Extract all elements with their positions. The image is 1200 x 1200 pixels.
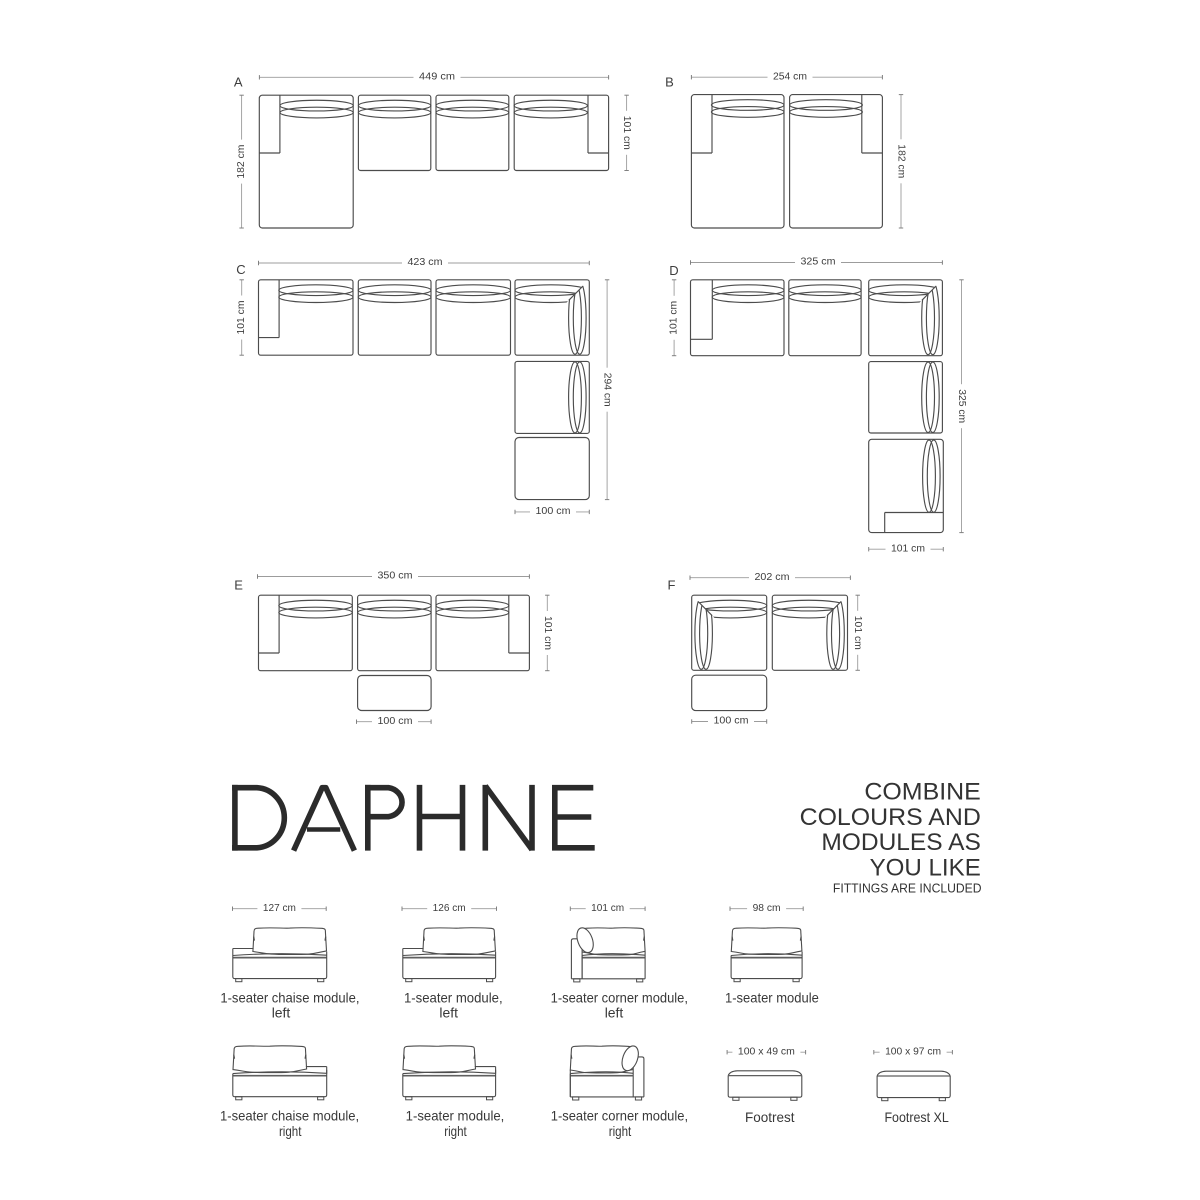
svg-text:COLOURS AND: COLOURS AND xyxy=(800,804,981,831)
svg-text:COMBINE: COMBINE xyxy=(864,779,980,806)
svg-text:right: right xyxy=(609,1123,632,1139)
svg-text:1-seater corner module,: 1-seater corner module, xyxy=(551,1108,688,1124)
svg-text:101 cm: 101 cm xyxy=(591,903,624,914)
svg-text:182 cm: 182 cm xyxy=(896,144,907,178)
svg-text:325 cm: 325 cm xyxy=(956,389,967,423)
svg-text:254 cm: 254 cm xyxy=(773,71,807,82)
svg-text:101 cm: 101 cm xyxy=(852,616,863,650)
svg-text:Footrest: Footrest xyxy=(745,1109,795,1125)
svg-text:100 cm: 100 cm xyxy=(536,506,571,517)
svg-text:100 x 97 cm: 100 x 97 cm xyxy=(885,1046,941,1057)
svg-text:294 cm: 294 cm xyxy=(602,373,613,407)
svg-text:E: E xyxy=(234,578,243,593)
svg-text:101 cm: 101 cm xyxy=(669,301,680,335)
svg-text:1-seater module,: 1-seater module, xyxy=(404,989,503,1005)
svg-text:449 cm: 449 cm xyxy=(419,71,455,82)
svg-text:MODULES AS: MODULES AS xyxy=(821,829,980,856)
svg-text:1-seater chaise module,: 1-seater chaise module, xyxy=(220,1108,359,1124)
svg-text:YOU LIKE: YOU LIKE xyxy=(870,854,981,881)
svg-text:1-seater module,: 1-seater module, xyxy=(406,1108,505,1124)
svg-text:1-seater chaise module,: 1-seater chaise module, xyxy=(220,989,359,1005)
svg-text:C: C xyxy=(236,262,245,277)
svg-text:101 cm: 101 cm xyxy=(236,301,247,335)
svg-text:101 cm: 101 cm xyxy=(891,543,925,554)
svg-text:1-seater module: 1-seater module xyxy=(725,989,819,1005)
svg-text:left: left xyxy=(605,1005,624,1021)
svg-text:350 cm: 350 cm xyxy=(378,571,413,582)
svg-text:A: A xyxy=(234,75,243,90)
svg-text:D: D xyxy=(669,263,678,278)
svg-text:Footrest XL: Footrest XL xyxy=(884,1109,948,1125)
svg-text:FITTINGS ARE INCLUDED: FITTINGS ARE INCLUDED xyxy=(833,882,982,896)
svg-text:left: left xyxy=(439,1005,458,1021)
svg-text:101 cm: 101 cm xyxy=(621,116,632,150)
svg-text:B: B xyxy=(665,74,674,89)
svg-text:100 cm: 100 cm xyxy=(714,716,749,727)
svg-text:100 x 49 cm: 100 x 49 cm xyxy=(738,1046,795,1057)
svg-text:182 cm: 182 cm xyxy=(236,145,247,179)
svg-text:F: F xyxy=(668,577,676,592)
svg-text:325 cm: 325 cm xyxy=(801,257,836,268)
svg-text:left: left xyxy=(272,1005,291,1021)
svg-text:1-seater corner module,: 1-seater corner module, xyxy=(551,989,688,1005)
svg-text:423 cm: 423 cm xyxy=(408,257,443,268)
svg-text:right: right xyxy=(444,1123,467,1139)
svg-text:127 cm: 127 cm xyxy=(263,903,296,914)
svg-text:right: right xyxy=(279,1123,302,1139)
svg-text:126 cm: 126 cm xyxy=(433,903,466,914)
svg-text:98 cm: 98 cm xyxy=(753,903,781,914)
svg-text:101 cm: 101 cm xyxy=(542,616,553,650)
svg-text:100 cm: 100 cm xyxy=(378,716,413,727)
svg-text:202 cm: 202 cm xyxy=(755,572,790,583)
